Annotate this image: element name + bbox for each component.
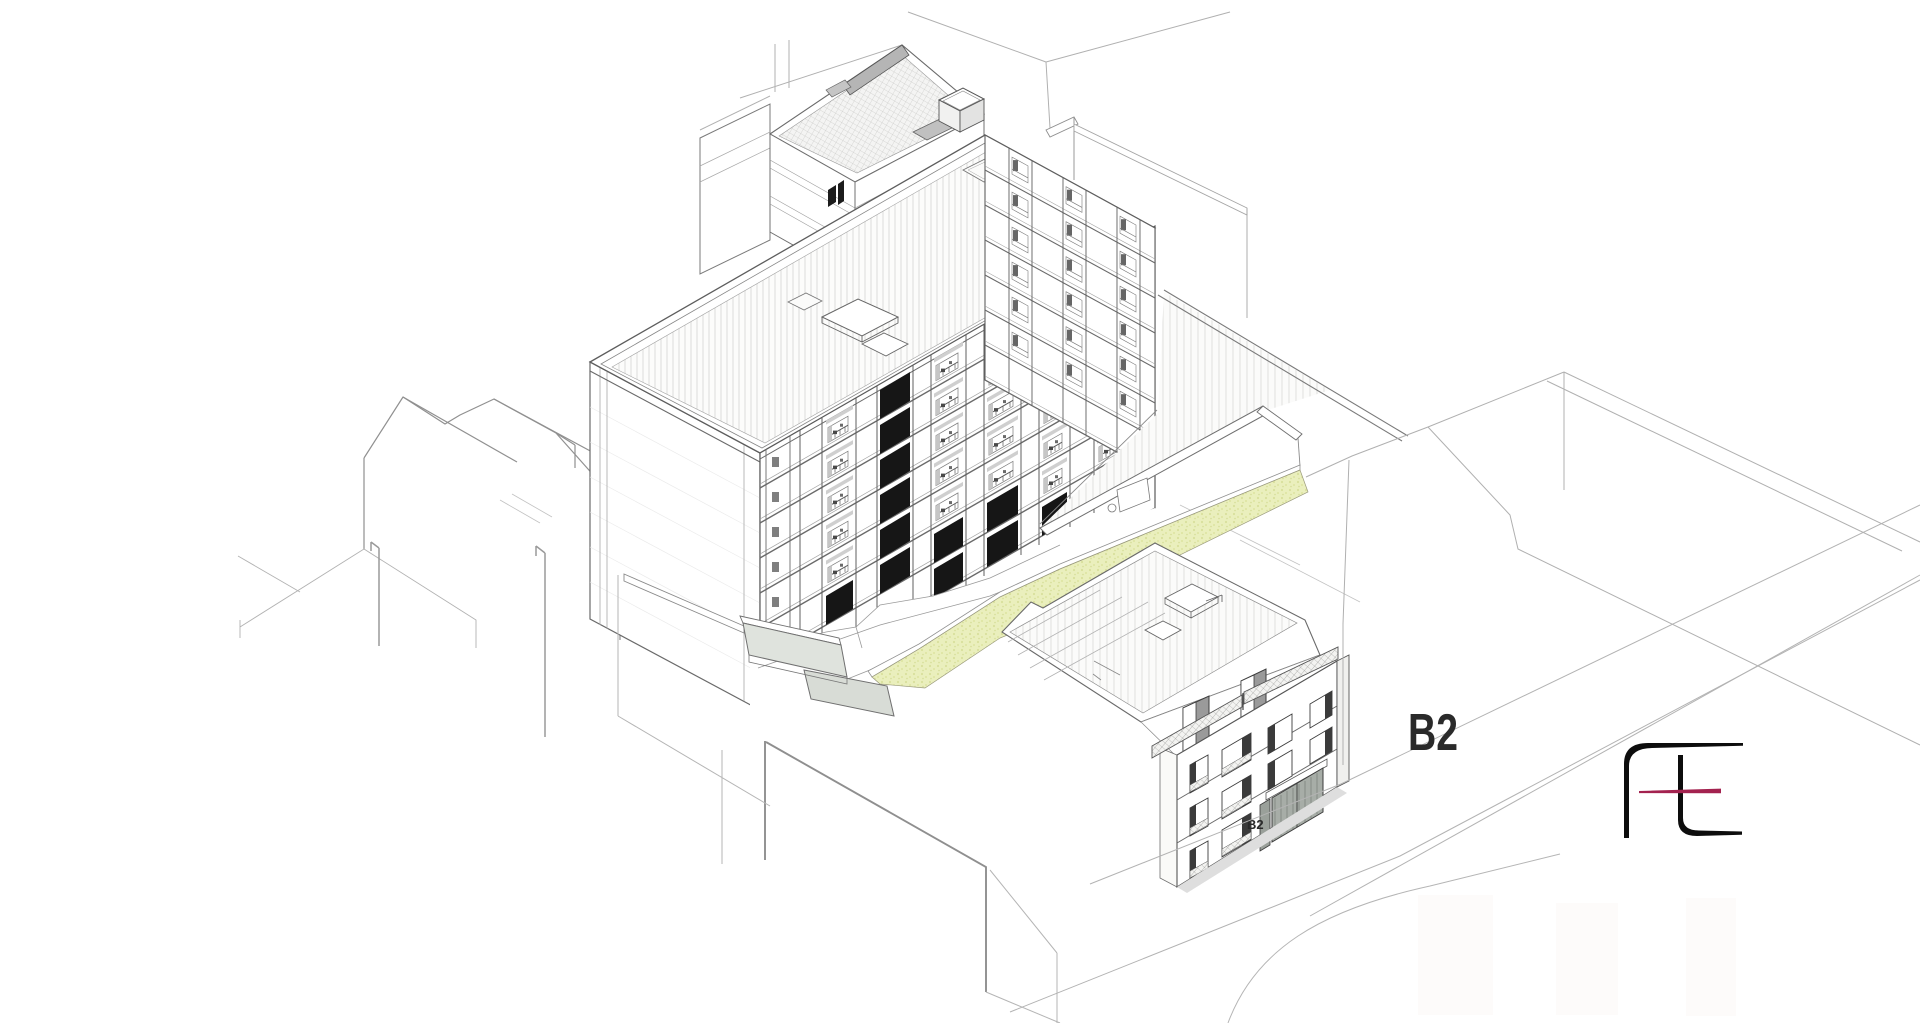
svg-text:B2: B2 — [1247, 817, 1264, 832]
svg-text:B2: B2 — [1408, 704, 1458, 762]
